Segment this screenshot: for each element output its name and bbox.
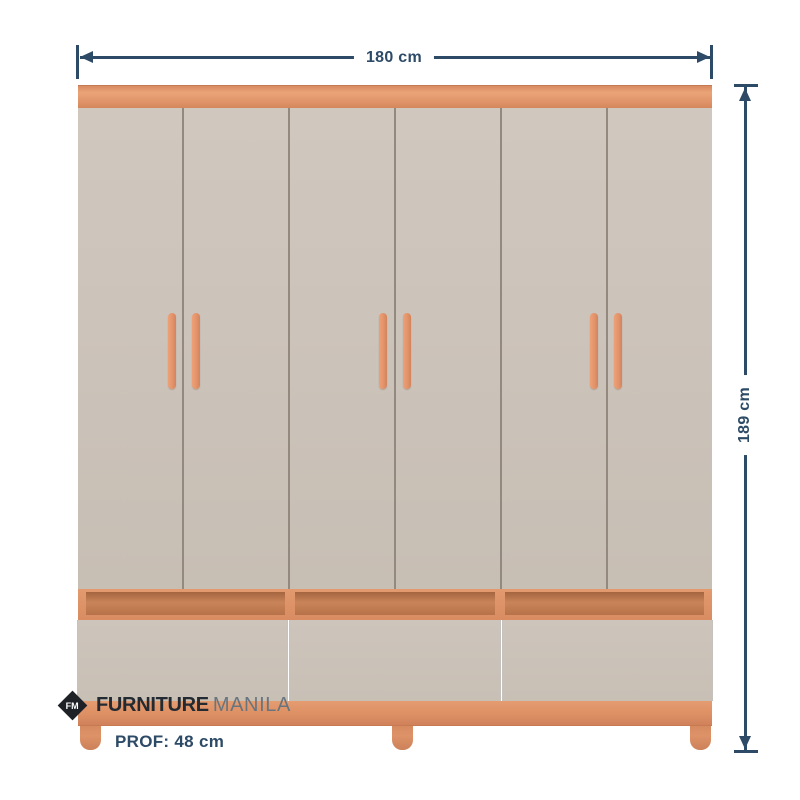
door-handle (379, 313, 387, 389)
depth-dimension-label: PROF: 48 cm (115, 732, 224, 752)
door-handle (403, 313, 411, 389)
niche-panel (505, 592, 704, 615)
wardrobe-top-panel (78, 85, 712, 108)
niche-panel (295, 592, 494, 615)
wardrobe (78, 85, 712, 751)
leg-right (690, 726, 711, 750)
door-handle (168, 313, 176, 389)
drawer-front (290, 620, 499, 701)
fm-diamond-icon: FM (58, 691, 88, 721)
arrow-left-icon (80, 51, 93, 63)
door-handle (614, 313, 622, 389)
arrow-down-icon (739, 736, 751, 749)
width-dimension-label: 180 cm (354, 47, 434, 69)
leg-left (80, 726, 101, 750)
arrow-right-icon (697, 51, 710, 63)
product-diagram: 180 cm 189 cm FM FURNITURE MANILA PROF: … (0, 0, 800, 800)
doors-row (78, 108, 712, 589)
brand-name-secondary: MANILA (213, 694, 291, 717)
arrow-up-icon (739, 88, 751, 101)
fm-monogram: FM (66, 701, 79, 711)
drawer-front (78, 620, 287, 701)
brand-logo: FM FURNITURE MANILA (58, 691, 291, 720)
door-handle (590, 313, 598, 389)
height-tick-bottom (734, 750, 758, 753)
brand-name-primary: FURNITURE (96, 694, 209, 717)
leg-center (392, 726, 413, 750)
width-tick-right (710, 45, 713, 79)
height-dimension-label: 189 cm (734, 375, 756, 455)
door-handle (192, 313, 200, 389)
width-tick-left (76, 45, 79, 79)
drawer-front (503, 620, 712, 701)
drawers-row (78, 620, 712, 701)
door-panel (78, 108, 182, 589)
open-shelf-niche (78, 589, 712, 620)
niche-panel (86, 592, 285, 615)
